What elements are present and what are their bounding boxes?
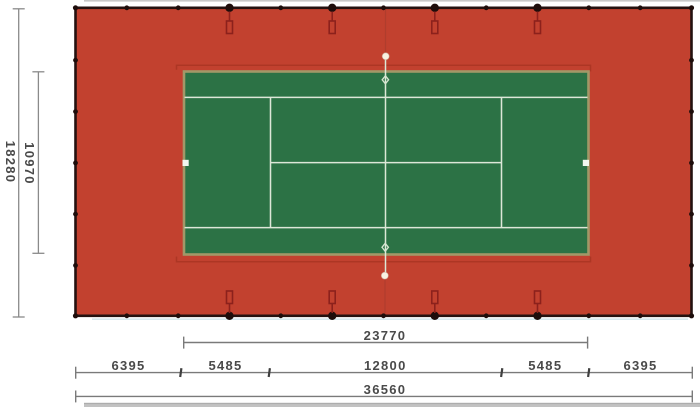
svg-text:18280: 18280 [3, 141, 18, 184]
svg-text:10970: 10970 [22, 142, 37, 185]
svg-text:36560: 36560 [364, 382, 407, 397]
svg-text:12800: 12800 [364, 358, 407, 373]
svg-text:5485: 5485 [208, 358, 242, 373]
svg-text:6395: 6395 [623, 358, 657, 373]
svg-text:23770: 23770 [364, 328, 407, 343]
svg-text:6395: 6395 [111, 358, 145, 373]
svg-text:5485: 5485 [528, 358, 562, 373]
